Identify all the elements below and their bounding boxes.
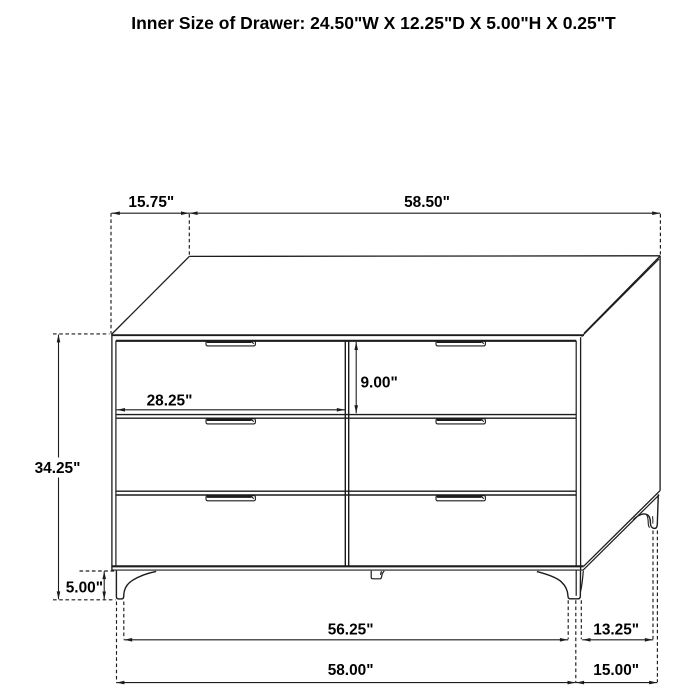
svg-text:13.25": 13.25" <box>593 621 639 638</box>
svg-text:58.50": 58.50" <box>404 194 450 211</box>
svg-text:5.00": 5.00" <box>66 580 103 597</box>
svg-text:56.25": 56.25" <box>328 621 374 638</box>
svg-text:Inner Size of Drawer: 24.50"W: Inner Size of Drawer: 24.50"W X 12.25"D … <box>131 13 616 33</box>
svg-text:9.00": 9.00" <box>361 374 398 391</box>
svg-text:58.00": 58.00" <box>328 662 374 679</box>
svg-text:34.25": 34.25" <box>35 460 81 477</box>
svg-text:15.75": 15.75" <box>128 194 174 211</box>
svg-text:28.25": 28.25" <box>147 392 193 409</box>
svg-text:15.00": 15.00" <box>593 662 639 679</box>
